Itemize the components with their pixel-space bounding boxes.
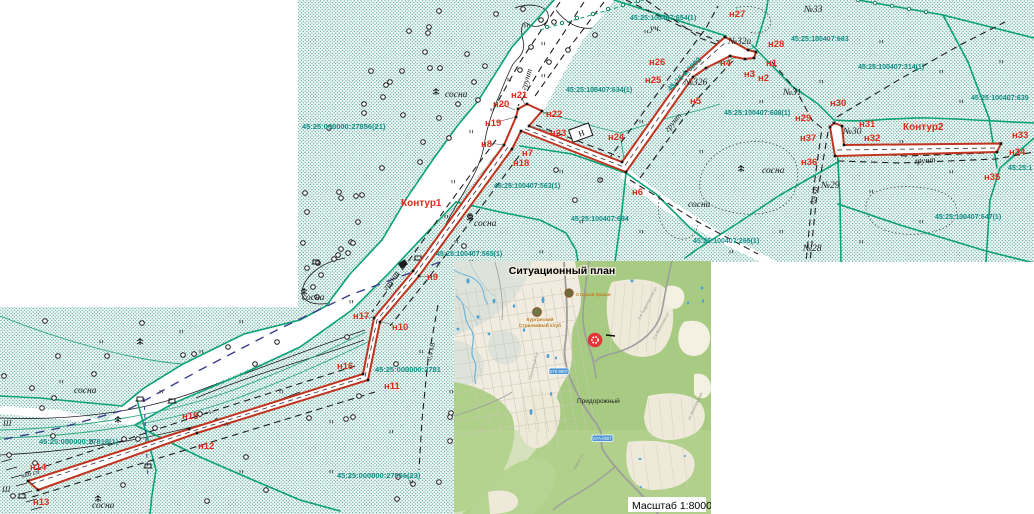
- svg-text:57К-0007: 57К-0007: [550, 369, 568, 374]
- svg-text:№28: №28: [802, 244, 822, 254]
- svg-text:н26: н26: [649, 57, 665, 68]
- svg-text:н29: н29: [795, 113, 811, 124]
- svg-text:н32: н32: [864, 133, 880, 144]
- svg-text:45:25:100407:634(1): 45:25:100407:634(1): [566, 87, 632, 94]
- svg-text:н16: н16: [337, 361, 353, 372]
- svg-text:н28: н28: [768, 39, 784, 50]
- svg-text:н33: н33: [1012, 130, 1028, 141]
- svg-text:н22: н22: [546, 109, 562, 120]
- svg-text:-А-: -А-: [222, 421, 230, 428]
- svg-text:н27: н27: [729, 9, 745, 20]
- svg-text:57А-0007: 57А-0007: [593, 436, 612, 441]
- svg-text:н9: н9: [427, 272, 438, 283]
- svg-text:сосна: сосна: [445, 90, 468, 100]
- svg-text:н6: н6: [632, 187, 643, 198]
- svg-text:сосна: сосна: [762, 166, 785, 176]
- svg-text:н25: н25: [645, 75, 662, 86]
- svg-text:45:25:100407:563(1): 45:25:100407:563(1): [494, 183, 560, 190]
- svg-text:н34: н34: [1009, 147, 1026, 158]
- svg-text:сосна: сосна: [92, 501, 115, 511]
- svg-text:н4: н4: [720, 58, 732, 69]
- svg-text:сосна: сосна: [302, 293, 325, 303]
- svg-text:Ш: Ш: [2, 419, 12, 428]
- svg-text:н10: н10: [392, 322, 408, 333]
- svg-text:н5: н5: [690, 96, 702, 107]
- svg-text:45:25:100407:639: 45:25:100407:639: [971, 95, 1029, 102]
- svg-text:н37: н37: [800, 133, 816, 144]
- svg-text:45:25:100407:314(1): 45:25:100407:314(1): [858, 64, 924, 71]
- svg-text:Масштаб 1:8000: Масштаб 1:8000: [632, 500, 712, 512]
- svg-text:45:25:000000:27856(21): 45:25:000000:27856(21): [302, 122, 386, 131]
- svg-text:№32а: №32а: [727, 37, 751, 47]
- svg-text:Контур2: Контур2: [903, 122, 944, 133]
- svg-text:н36: н36: [801, 157, 817, 168]
- svg-text:45:25:100407:654(1): 45:25:100407:654(1): [630, 15, 696, 22]
- svg-text:н23: н23: [550, 128, 566, 139]
- svg-text:н35: н35: [984, 172, 1001, 183]
- svg-text:н24: н24: [608, 132, 625, 143]
- svg-text:н2: н2: [758, 73, 769, 84]
- svg-text:45:25:100407:265(1): 45:25:100407:265(1): [693, 238, 759, 245]
- svg-text:45:25:100407:694: 45:25:100407:694: [571, 216, 629, 223]
- svg-text:45:25:000000:27818(1): 45:25:000000:27818(1): [39, 437, 119, 446]
- svg-text:-А-: -А-: [205, 409, 213, 416]
- svg-text:н1: н1: [766, 58, 778, 69]
- svg-text:н11: н11: [384, 381, 400, 392]
- svg-text:45:25:000000:27856(23): 45:25:000000:27856(23): [337, 471, 421, 480]
- svg-text:45:25:100407:565(1): 45:25:100407:565(1): [436, 251, 502, 258]
- svg-text:сосна: сосна: [688, 200, 711, 210]
- svg-text:н18: н18: [513, 158, 529, 169]
- svg-text:н30: н30: [830, 98, 846, 109]
- svg-text:н12: н12: [198, 441, 214, 452]
- svg-text:№29: №29: [820, 181, 840, 191]
- svg-text:Ситуационный план: Ситуационный план: [509, 265, 616, 277]
- svg-text:Стрелковый клуб: Стрелковый клуб: [519, 322, 561, 329]
- svg-text:н31: н31: [859, 119, 876, 130]
- svg-text:№326: №326: [683, 78, 707, 88]
- svg-text:н20: н20: [493, 99, 509, 110]
- svg-text:Ш: Ш: [1, 485, 11, 494]
- svg-text:45:25:100407:608(1): 45:25:100407:608(1): [724, 110, 790, 117]
- svg-text:уч.: уч.: [649, 24, 661, 34]
- svg-text:н8: н8: [481, 139, 492, 150]
- svg-text:Курганский: Курганский: [527, 316, 554, 323]
- svg-text:Контур1: Контур1: [401, 198, 442, 209]
- svg-text:45:25:1: 45:25:1: [1008, 165, 1032, 172]
- svg-text:н19: н19: [485, 118, 501, 129]
- svg-text:грунт: грунт: [914, 154, 936, 165]
- svg-text:н17: н17: [353, 311, 369, 322]
- svg-text:н15: н15: [182, 411, 199, 422]
- svg-text:45:25:000000:2781: 45:25:000000:2781: [375, 365, 441, 374]
- svg-text:№31: №31: [782, 88, 801, 98]
- svg-text:Старый фазан: Старый фазан: [576, 291, 611, 298]
- svg-text:№30: №30: [842, 127, 862, 137]
- svg-text:45:25:100407:647(1): 45:25:100407:647(1): [935, 214, 1001, 221]
- svg-text:н21: н21: [511, 90, 528, 101]
- svg-text:н3: н3: [744, 69, 755, 80]
- svg-text:соcна: соcна: [474, 219, 497, 229]
- svg-text:сосна: сосна: [74, 386, 97, 396]
- svg-text:№33: №33: [803, 5, 823, 15]
- svg-text:45:25:100407:683: 45:25:100407:683: [791, 36, 849, 43]
- svg-text:Придорожный: Придорожный: [577, 397, 620, 405]
- svg-text:н13: н13: [33, 497, 49, 508]
